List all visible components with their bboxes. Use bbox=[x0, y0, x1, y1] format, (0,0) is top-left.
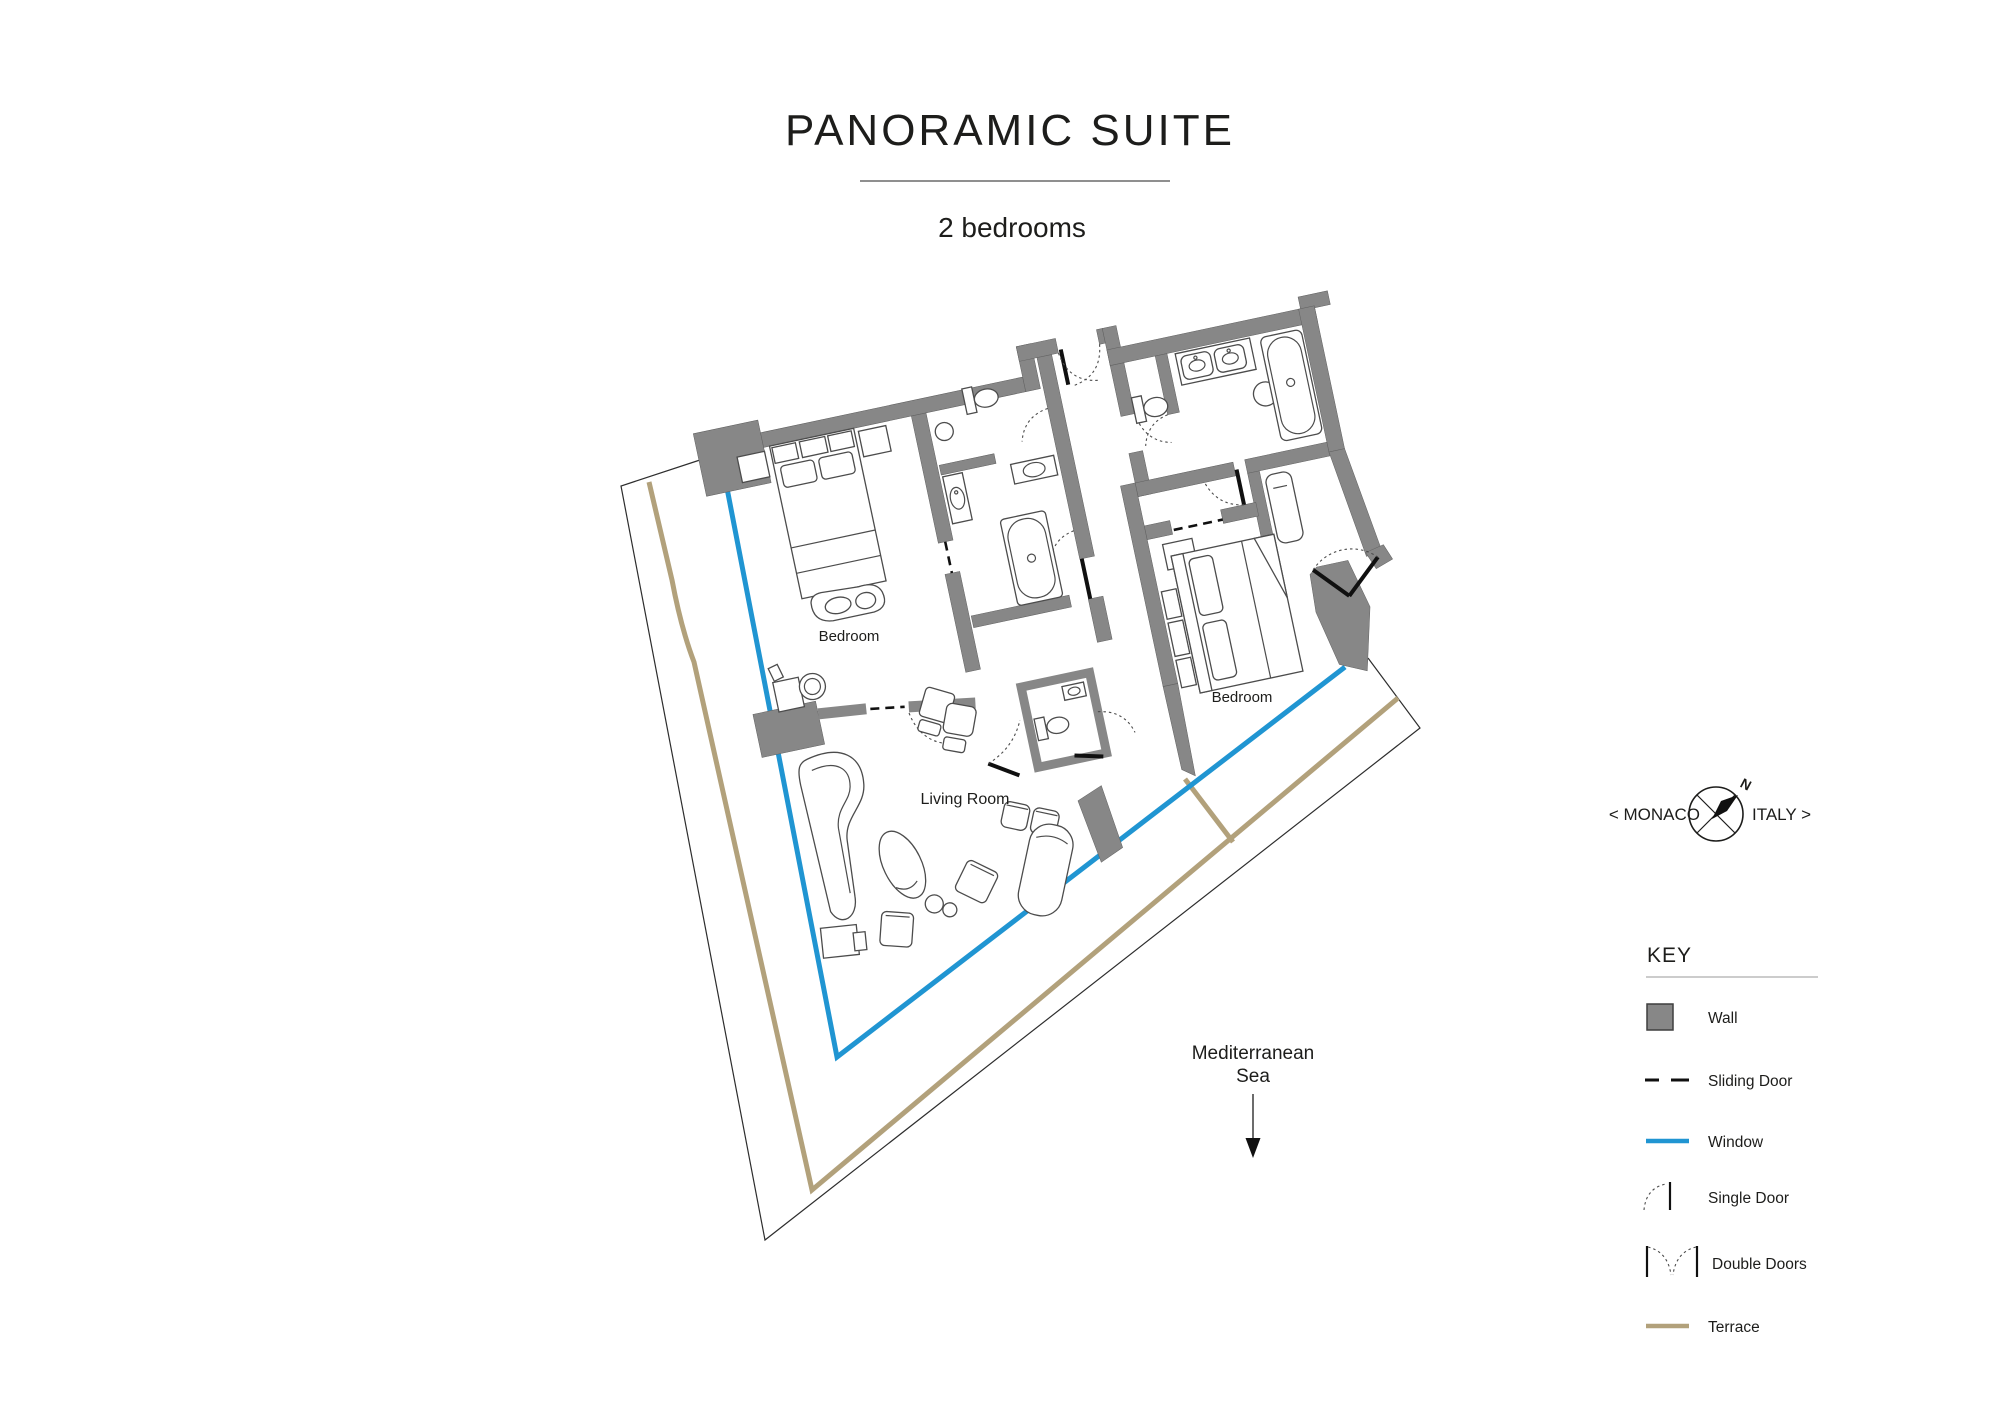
wall-bedroom1-top bbox=[761, 377, 1026, 447]
key-row-wall: Wall bbox=[1647, 1004, 1738, 1030]
wall-bedroom2-top-a bbox=[1144, 521, 1172, 540]
wall-bedroom2-top-b bbox=[1221, 502, 1259, 523]
round-basin bbox=[934, 421, 955, 442]
wall-seaside-block-east bbox=[1307, 558, 1383, 679]
bedroom2-label: Bedroom bbox=[1212, 689, 1273, 706]
curved-sofa-body bbox=[1015, 820, 1077, 919]
terrace-divider-line bbox=[1185, 779, 1233, 842]
wall-swatch-icon bbox=[1647, 1004, 1673, 1030]
bedroom1-label: Bedroom bbox=[819, 628, 880, 645]
key-legend: KEY Wall Sliding Door Window Single Door… bbox=[1644, 944, 1818, 1336]
wall-bedroom1-bottom-a bbox=[818, 704, 866, 719]
armchair bbox=[880, 911, 914, 947]
lounge-table bbox=[942, 736, 966, 753]
single-door-arc-icon bbox=[1644, 1184, 1666, 1210]
pouf-ottoman bbox=[870, 824, 936, 905]
door-arc-corridor-living bbox=[981, 720, 1028, 764]
curved-sofa bbox=[1015, 820, 1077, 919]
key-label-single-door: Single Door bbox=[1708, 1190, 1789, 1207]
armchair-seat bbox=[954, 859, 999, 904]
console-tray bbox=[853, 932, 867, 951]
nightstand bbox=[737, 451, 770, 482]
compass: N < MONACO ITALY > bbox=[1609, 775, 1811, 841]
compass-west-label: < MONACO bbox=[1609, 805, 1700, 824]
header: PANORAMIC SUITE 2 bedrooms bbox=[785, 106, 1235, 243]
key-label-double-doors: Double Doors bbox=[1712, 1256, 1807, 1273]
key-row-window: Window bbox=[1646, 1134, 1764, 1151]
compass-east-label: ITALY > bbox=[1752, 805, 1811, 824]
sliding-door-corridor-bar bbox=[1082, 559, 1091, 599]
sliding-door-bedroom1-right bbox=[945, 542, 952, 573]
sea-arrow-head bbox=[1246, 1138, 1261, 1158]
key-label-sliding-door: Sliding Door bbox=[1708, 1073, 1792, 1090]
page-title: PANORAMIC SUITE bbox=[785, 106, 1235, 155]
sliding-door-bedroom1-bottom bbox=[870, 702, 904, 714]
wall-bedroom2-left-tip bbox=[1163, 683, 1197, 778]
double-door-arc-icon bbox=[1648, 1247, 1671, 1275]
wall-seaside-block-living bbox=[1076, 784, 1125, 864]
side-table bbox=[924, 893, 945, 914]
sea-annotation: Mediterranean Sea bbox=[1192, 1043, 1315, 1158]
floorplan-canvas: PANORAMIC SUITE 2 bedrooms bbox=[0, 0, 2000, 1414]
door-leaf-entry bbox=[1061, 350, 1068, 385]
key-label-window: Window bbox=[1708, 1134, 1764, 1151]
page-subtitle: 2 bedrooms bbox=[938, 212, 1086, 243]
desk-lamp bbox=[768, 664, 783, 681]
wall-bath2-west-a bbox=[1110, 363, 1135, 417]
sea-label-line1: Mediterranean bbox=[1192, 1043, 1315, 1064]
compass-needle bbox=[1712, 795, 1738, 819]
wall-bath2-bottom-a bbox=[1135, 462, 1236, 496]
wall-bath2-bottom-b bbox=[1245, 442, 1330, 473]
door-leaf-bedroom2 bbox=[1237, 470, 1244, 505]
armchair bbox=[954, 859, 999, 904]
key-row-sliding-door: Sliding Door bbox=[1645, 1073, 1792, 1090]
key-label-terrace: Terrace bbox=[1708, 1319, 1760, 1336]
key-title: KEY bbox=[1647, 944, 1692, 967]
nightstand bbox=[858, 426, 891, 457]
key-row-single-door: Single Door bbox=[1644, 1182, 1789, 1210]
door-arc-mid-toilet bbox=[1016, 408, 1053, 441]
double-door-arc-icon bbox=[1673, 1247, 1696, 1275]
wall-east-angled bbox=[1329, 446, 1382, 560]
key-row-double-doors: Double Doors bbox=[1647, 1246, 1807, 1277]
console-desk bbox=[820, 924, 867, 958]
living-room-label: Living Room bbox=[921, 791, 1010, 808]
key-label-wall: Wall bbox=[1708, 1010, 1738, 1027]
wall-midbath-divider bbox=[939, 454, 996, 475]
wall-bedroom2-left bbox=[1120, 483, 1177, 687]
vanity bbox=[1011, 455, 1058, 484]
compass-north-label: N bbox=[1738, 775, 1754, 794]
wall-corridor-left-lower bbox=[1088, 596, 1112, 642]
door-leaf-corridor-living bbox=[988, 758, 1019, 781]
chair-ottoman bbox=[917, 719, 941, 737]
lounge-seat bbox=[942, 702, 977, 737]
side-table bbox=[942, 902, 959, 919]
building bbox=[690, 279, 1452, 972]
sea-label-line2: Sea bbox=[1236, 1066, 1270, 1087]
sliding-door-bedroom2-top bbox=[1174, 520, 1223, 530]
sectional-sofa bbox=[795, 747, 891, 923]
bathtub-frame bbox=[1000, 510, 1063, 606]
key-row-terrace: Terrace bbox=[1646, 1319, 1760, 1336]
